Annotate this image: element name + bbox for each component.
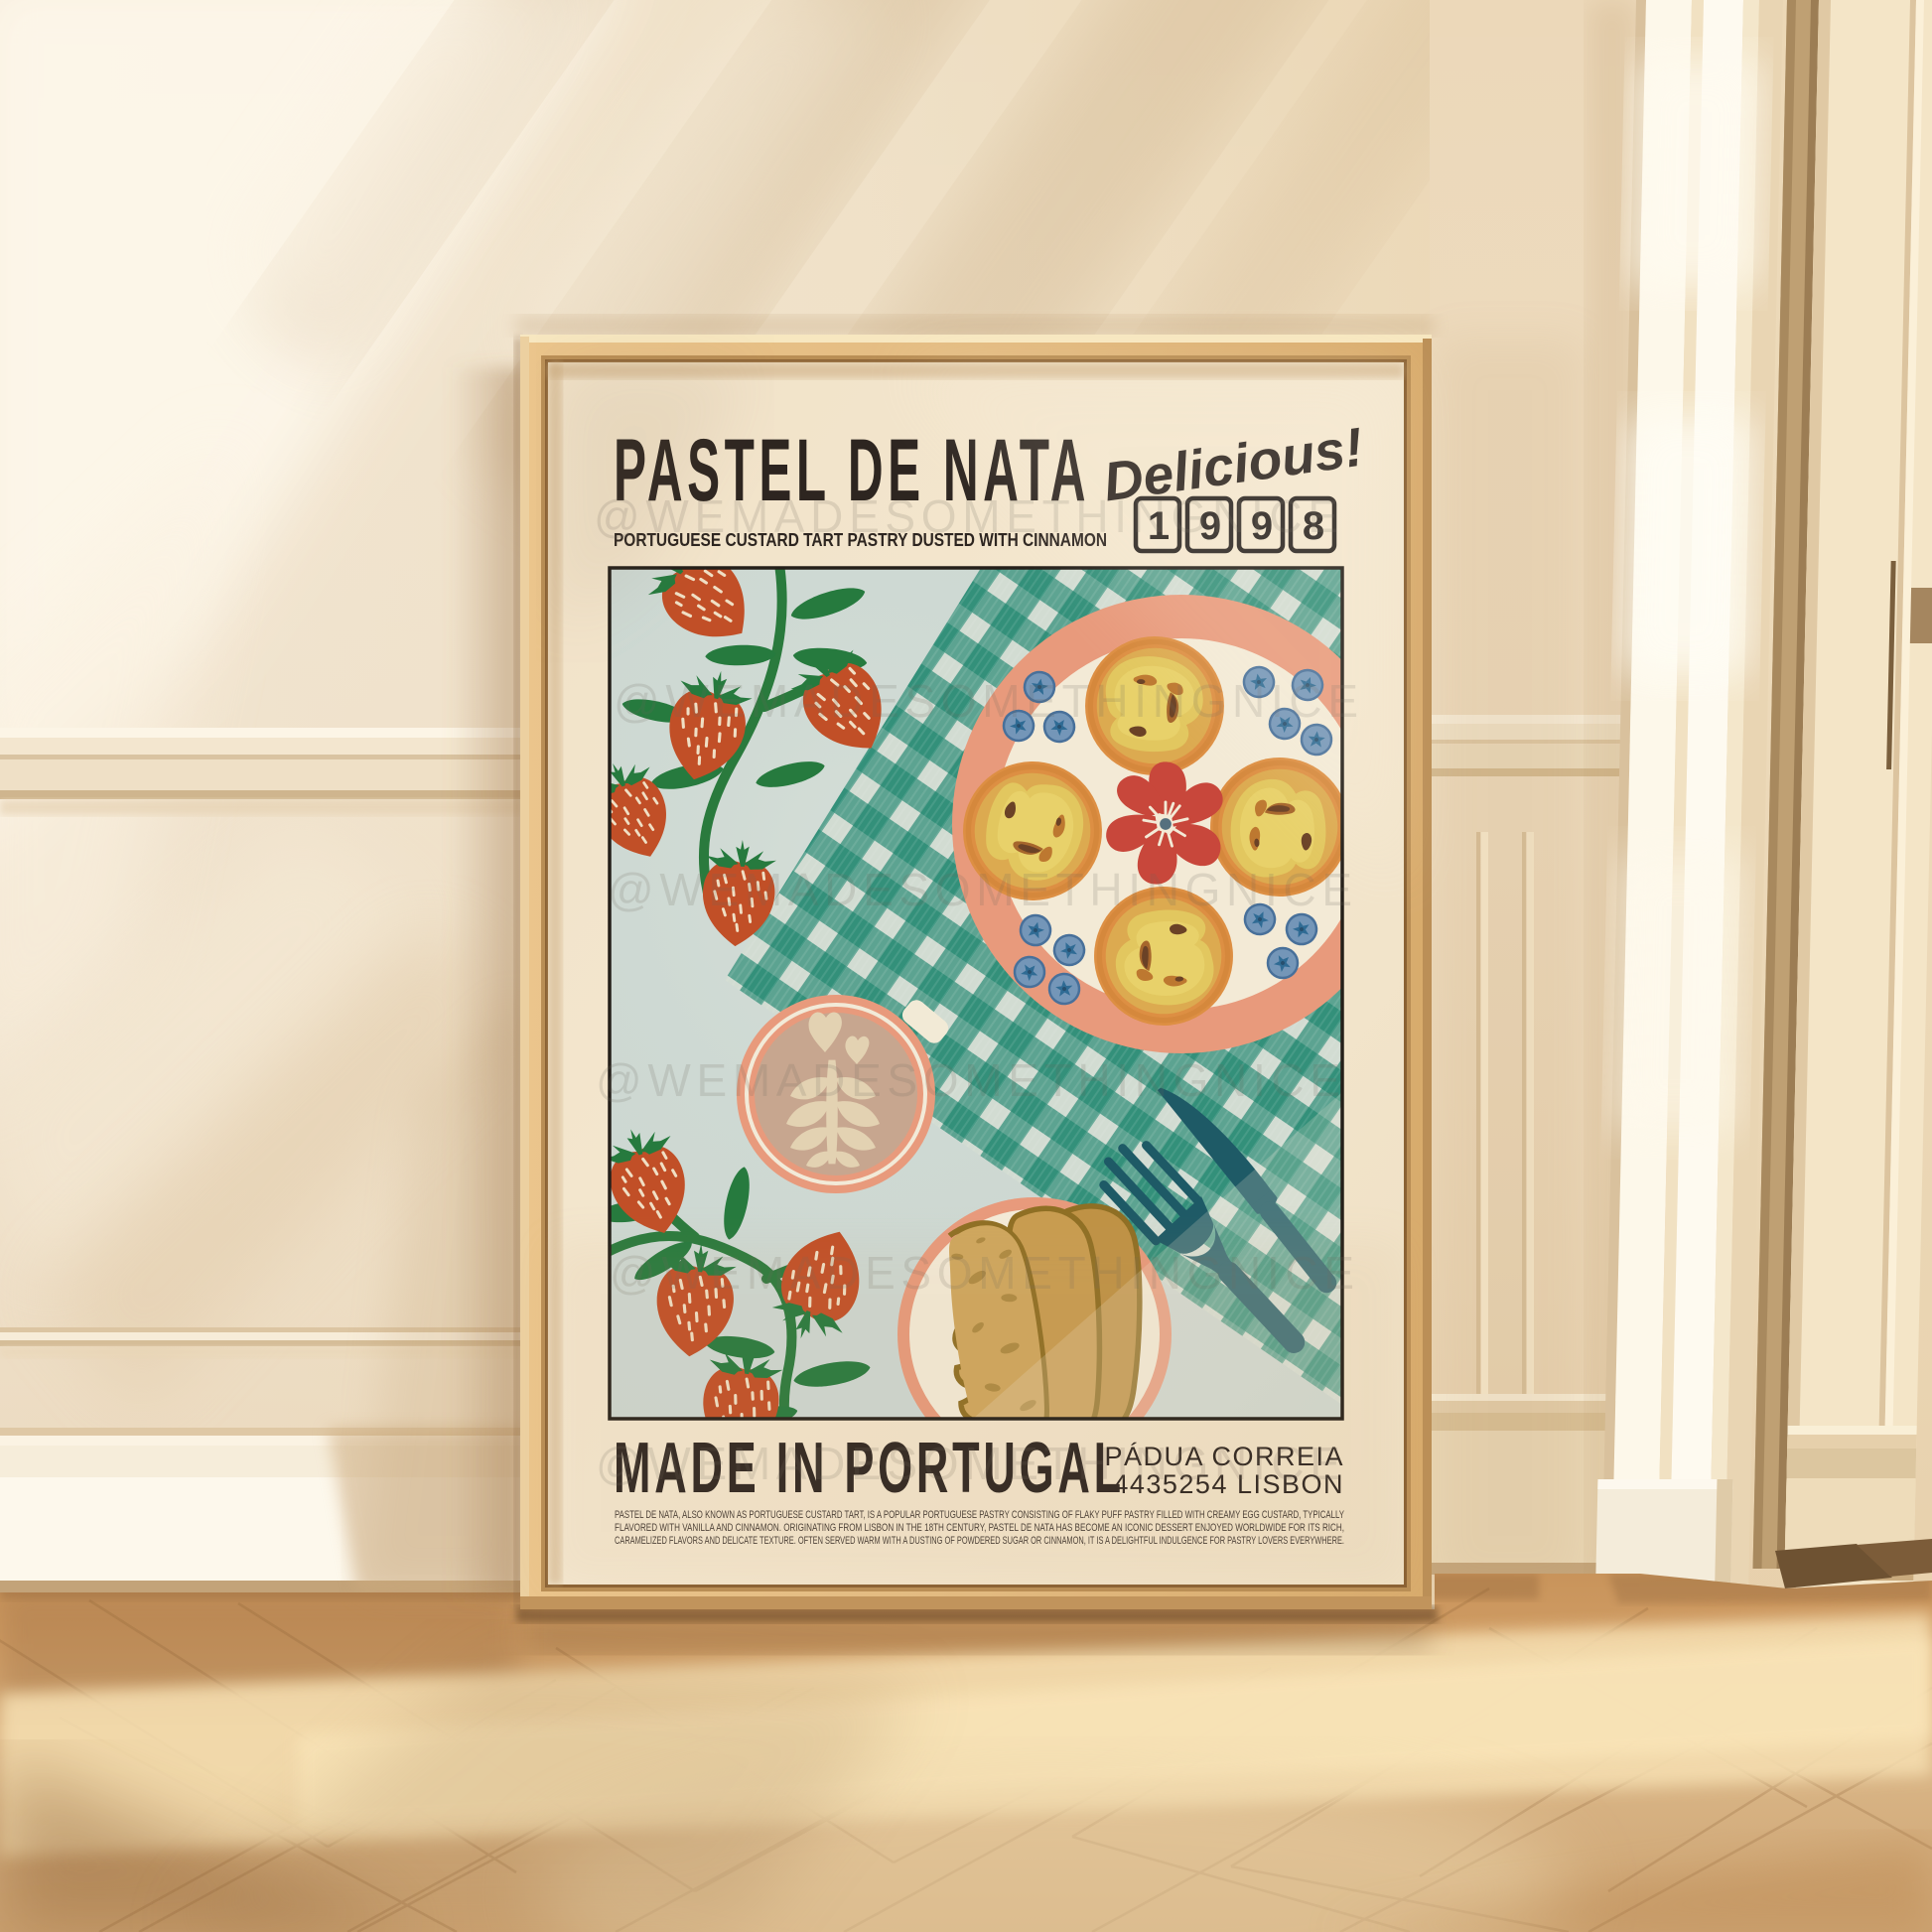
svg-text:@WEMADESOMETHINGNICE: @WEMADESOMETHINGNICE	[596, 1054, 1340, 1106]
svg-text:@WEMADESOMETHINGNICE: @WEMADESOMETHINGNICE	[608, 864, 1352, 915]
